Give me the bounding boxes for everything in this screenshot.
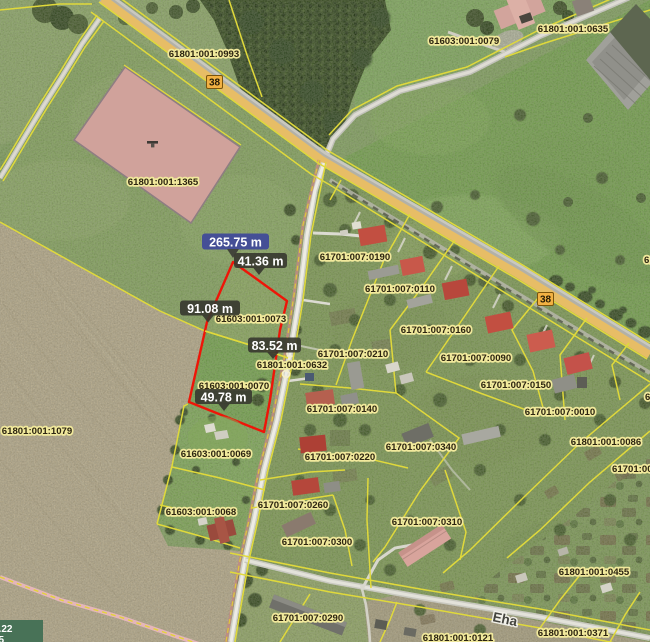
svg-text:61701:007:0310: 61701:007:0310: [392, 517, 462, 528]
svg-text:38: 38: [540, 295, 552, 306]
svg-text:61801:001:0121: 61801:001:0121: [423, 633, 494, 642]
svg-text:49.78 m: 49.78 m: [201, 391, 247, 405]
svg-text:61701:007:00: 61701:007:00: [612, 464, 650, 475]
svg-text:61701:007:0220: 61701:007:0220: [305, 452, 375, 463]
svg-text:61701:007:0300: 61701:007:0300: [282, 537, 352, 548]
svg-text:38: 38: [209, 78, 221, 89]
svg-text:61801:001:0635: 61801:001:0635: [538, 24, 609, 35]
svg-text:61603:001:0069: 61603:001:0069: [181, 449, 251, 460]
svg-text:61801:001:0632: 61801:001:0632: [257, 360, 327, 371]
svg-text:61801:001:0993: 61801:001:0993: [169, 49, 239, 60]
svg-text:61603:001:0068: 61603:001:0068: [166, 507, 237, 518]
svg-text:61701:007:0210: 61701:007:0210: [318, 349, 388, 360]
svg-text:265.75 m: 265.75 m: [209, 236, 262, 250]
svg-text:91.08 m: 91.08 m: [187, 302, 233, 316]
svg-text:61701:007:0150: 61701:007:0150: [481, 380, 551, 391]
svg-text:61701:007:0110: 61701:007:0110: [365, 284, 435, 295]
svg-text:61: 61: [644, 255, 650, 266]
svg-text:61801:001:1079: 61801:001:1079: [2, 426, 72, 437]
svg-text:6: 6: [645, 392, 650, 403]
svg-text:61701:007:0160: 61701:007:0160: [401, 325, 471, 336]
svg-text:61801:001:0086: 61801:001:0086: [571, 437, 641, 448]
svg-text:61701:007:0010: 61701:007:0010: [525, 407, 595, 418]
svg-text:61801:001:1365: 61801:001:1365: [128, 177, 199, 188]
svg-text:83.52 m: 83.52 m: [252, 339, 298, 353]
svg-text:61801:001:0455: 61801:001:0455: [559, 567, 630, 578]
svg-text:61701:007:0190: 61701:007:0190: [320, 252, 390, 263]
svg-text:35: 35: [0, 635, 5, 642]
svg-text:61701:007:0260: 61701:007:0260: [258, 500, 328, 511]
svg-text:61701:007:0140: 61701:007:0140: [307, 404, 377, 415]
svg-text:1.22: 1.22: [0, 624, 13, 635]
svg-text:61603:001:0079: 61603:001:0079: [429, 36, 499, 47]
svg-text:61701:007:0290: 61701:007:0290: [273, 613, 343, 624]
svg-text:41.36 m: 41.36 m: [238, 255, 284, 269]
svg-text:61801:001:0371: 61801:001:0371: [538, 628, 609, 639]
svg-text:61701:007:0090: 61701:007:0090: [441, 353, 511, 364]
svg-text:61701:007:0340: 61701:007:0340: [386, 442, 456, 453]
